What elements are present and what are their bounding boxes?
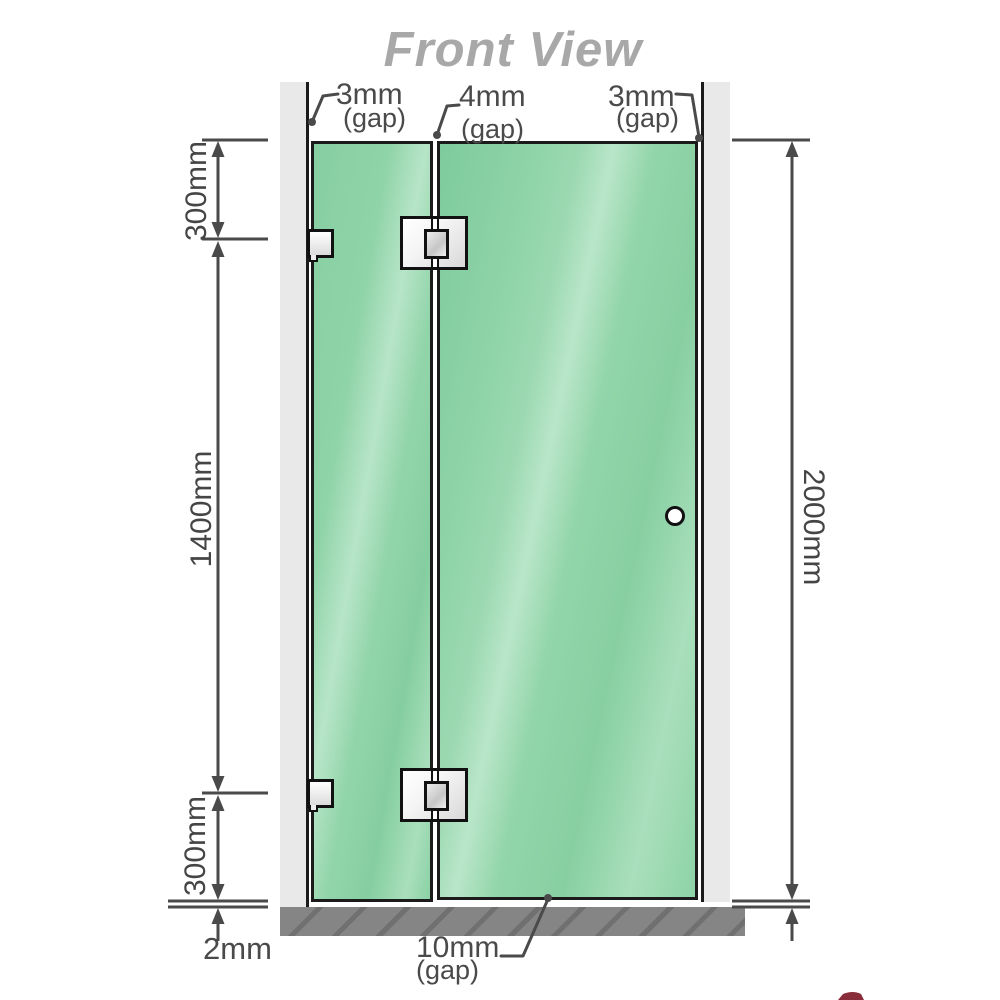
hinge-clamp-plate [424, 229, 449, 259]
top-wall-bracket [307, 229, 334, 258]
gap-label-bottom-left: 2mm [203, 933, 272, 964]
door-glass-panel [437, 141, 698, 900]
gap-label-top-middle: 4mm [459, 82, 526, 112]
hinge-clamp-plate [424, 781, 449, 811]
left-wall [280, 82, 306, 907]
dimension-left-top: 300mm [182, 141, 212, 241]
bottom-wall-bracket-tab [309, 805, 318, 812]
gap-note-bottom: (gap) [416, 957, 479, 984]
floor-base [280, 907, 745, 936]
top-wall-bracket-tab [309, 255, 318, 262]
cropped-logo-mark [838, 992, 864, 1000]
bottom-glass-hinge [400, 768, 468, 822]
right-wall-inner-edge [701, 82, 704, 902]
bottom-wall-bracket [307, 779, 334, 808]
dimension-left-bottom: 300mm [181, 796, 211, 896]
gap-note-top-right: (gap) [616, 105, 679, 132]
top-glass-hinge [400, 216, 468, 270]
diagram-title: Front View [384, 22, 643, 78]
right-wall [704, 82, 730, 902]
gap-note-top-left: (gap) [343, 105, 406, 132]
gap-note-top-middle: (gap) [461, 116, 524, 143]
dimension-right-height: 2000mm [798, 469, 828, 586]
shower-screen-front-view-diagram: Front View [0, 0, 1000, 1000]
dimension-left-middle: 1400mm [187, 451, 217, 568]
door-knob [665, 506, 685, 526]
